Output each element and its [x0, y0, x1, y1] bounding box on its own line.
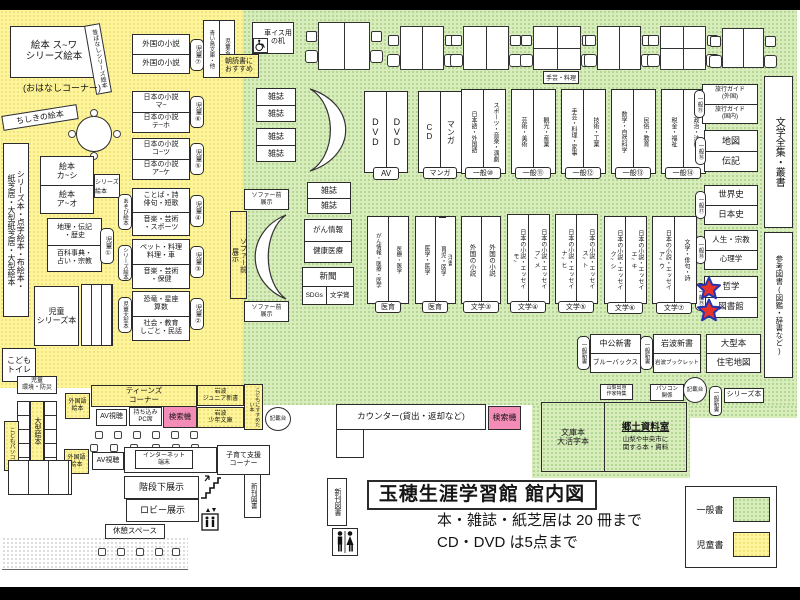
writing-desk-right: 記載台 [683, 377, 707, 403]
chair [133, 431, 141, 439]
search-terminal-counter: 検索機 [488, 406, 521, 430]
newspaper-rack: 新聞 SDGs 文学賞 [302, 267, 354, 305]
shelf-cell: 日本の小説・エッセイ エ~キ [625, 217, 646, 303]
tag-asobi-ehon: あそび絵本 [118, 194, 132, 230]
general-area-fill-ext2 [690, 405, 797, 418]
large-picture-books-strip: 大型絵本 [30, 401, 44, 461]
stack-lit-7: 日本の小説・エッセイ ア~ウ 文学・俳句・詩 [652, 216, 697, 304]
kids-shelf-strip [44, 401, 57, 461]
ohanashi-corner-label: (おはなしコーナー) [6, 82, 118, 94]
star-marker-icon [697, 298, 721, 322]
stack-med-2: 医学・医学 洋書 育児・医学 [415, 216, 456, 304]
new-books-strip-2: 新刊図書 [327, 478, 347, 526]
shelf-cell: 日本の小説・エッセイ ア~ウ [653, 217, 674, 303]
label-ippan-14: 一般⑭ [665, 167, 701, 179]
series-ehon-tag: シリーズ絵本 [94, 174, 120, 198]
shelf-cell: 日本の小説 コ~ツ [133, 139, 189, 159]
shelf-cell: 雑誌 [308, 183, 350, 198]
elevator-icon [201, 507, 219, 531]
shelf-cell: 外国の小説 [133, 54, 189, 74]
kids-shelf-unit [81, 284, 113, 346]
chair [68, 130, 76, 138]
shelf-cell: 日本の小説・エッセイ フ~メ [528, 215, 549, 303]
chair [190, 431, 198, 439]
yamanashi-authors-note: 山梨出身 作家特集 [600, 384, 633, 400]
star-marker-icon [697, 276, 721, 300]
shelf-cell: 民俗・教育 [633, 90, 655, 173]
shelf-cell: 観光・産業 [533, 90, 555, 173]
shelf-cell: 地図 [705, 131, 757, 151]
shelf-cell: 音楽・芸術 ・保健 [133, 264, 189, 289]
chair [155, 548, 163, 556]
chair [136, 548, 144, 556]
cancer-health-rack: がん情報 健康医療 [304, 219, 352, 263]
shelf-cell: 絵本 ア~オ [41, 185, 93, 214]
shelf-literature-anthology: 文学全集・叢書 [764, 76, 793, 228]
shelf-cell: 手芸・料理・家事 [562, 90, 583, 173]
shelf-cell: 雑誌 [257, 145, 295, 162]
series-books-box: シリーズ本 [724, 388, 764, 403]
av-viewing-2: AV視聴 [92, 452, 124, 470]
stack-lit-3: 外国の小説 外国の小説 [461, 216, 501, 304]
shelf-cell: 青い鳥文庫・他 [204, 21, 219, 77]
shelf-cell: 外国の小説 [462, 217, 481, 303]
shelf-cell: 旅行ガイド (国内) [703, 104, 757, 124]
chair [171, 431, 179, 439]
craft-cooking-note: 手芸・料理 [543, 71, 579, 84]
shelf-cell: 雑誌 [257, 105, 295, 122]
shelf-kids-jp-novels-ko: 日本の小説 コ~ツ 日本の小説 ア~ケ [132, 138, 190, 180]
asadoku-recommend-box: 朝読書に おすすめ [219, 54, 259, 78]
local-room-desc: 山梨や中央市に 関する本・資料 [623, 436, 669, 451]
sdgs-cell: SDGs [303, 287, 327, 305]
foreign-picture-books-1: 外国語 絵本 [65, 393, 90, 419]
shelf-cell: 音楽・芸術 ・スポーツ [133, 212, 189, 236]
shelf-kids-pets-cooking: ペット・料理 料理・車 音楽・芸術 ・保健 [132, 239, 190, 289]
reading-table [660, 26, 706, 70]
label-med-2: 医育 [422, 301, 448, 313]
map-title: 玉穂生涯学習館 館内図 [367, 480, 597, 510]
under-stairs-display: 階段下展示 [124, 476, 199, 499]
stack-med-1: がん情報・医療・医学 医療・医学 [367, 216, 409, 304]
chair [95, 431, 103, 439]
tag-ippan-15: 一般⑮ [694, 90, 705, 118]
local-room-cell: 郷土資料室 山梨や中央市に 関する本・資料 [604, 402, 686, 472]
rule-av: CD・DVD は5点まで [437, 534, 637, 552]
label-lit-5: 文学⑤ [558, 301, 594, 313]
label-manga: マンガ [423, 167, 457, 179]
stack-av: DVD DVD [364, 91, 408, 173]
shelf-kids-jp-novels-ma: 日本の小説 マ~ 日本の小説 テ~ホ [132, 91, 190, 133]
lobby-display: ロビー展示 [126, 499, 199, 522]
shelf-cell: マンガ [440, 92, 462, 172]
chair [110, 444, 118, 452]
local-room-title: 郷土資料室 [622, 423, 670, 434]
wheelchair-icon [253, 38, 268, 53]
shelf-cell: CD [419, 92, 440, 172]
search-terminal-teens: 検索機 [163, 406, 197, 428]
iwanami-shonen-bunko: 岩波 少年文庫 [197, 407, 244, 428]
shelf-cell: 日本の小説・エッセイ モ~ [508, 215, 528, 303]
restroom-icon [332, 528, 358, 556]
stack-ippan-11: 芸術・美術 観光・産業 [511, 89, 556, 174]
pc-related-box: パソコン 関係 [650, 384, 684, 401]
chair [117, 548, 125, 556]
shelf-maps-biography: 地図 伝記 [704, 130, 758, 172]
shelf-world-japan-history: 世界史 日本史 [704, 185, 758, 225]
label-lit-4: 文学④ [510, 301, 546, 313]
kids-recommend-strip: こどもにすすめたい本 [244, 384, 263, 430]
shelf-cell: 税金・福祉 [662, 90, 683, 173]
tag-series-ehon-side: シリーズ絵本 [118, 245, 132, 281]
shelf-cell: 社会・教育 しごと・民話 [133, 316, 189, 341]
shelf-cell: 外国の小説 [133, 35, 189, 54]
shelf-cell: ブルーバックス [591, 353, 640, 372]
shelf-cell: 日本語・外国語 [462, 90, 483, 173]
shelf-kids-foreign-novels: 外国の小説 外国の小説 [132, 34, 190, 74]
reading-table [533, 26, 581, 70]
chair [98, 548, 106, 556]
shelf-cell: 数学・自然科学 [612, 90, 633, 173]
reading-table [722, 28, 764, 68]
shelf-cell: 世界史 [705, 186, 757, 205]
shelf-cell: 人生・宗教 [705, 231, 757, 250]
reading-table [463, 26, 509, 70]
tag-ippan-16: 一般⑯ [695, 137, 706, 165]
kids-round-table [76, 116, 112, 152]
magazine-rack-1: 雑誌 雑誌 [256, 88, 296, 122]
reading-table [597, 26, 641, 70]
shelf-cell: 絵本 カ~シ [41, 157, 93, 185]
shelf-cell: 百科事典・ 占い・宗教 [48, 245, 101, 272]
label-med-1: 医育 [375, 301, 401, 313]
shelf-ehon-ka-shi-a-o: 絵本 カ~シ 絵本 ア~オ [40, 156, 94, 214]
sofa-front-display-bottom: ソファー前 展示 [244, 301, 289, 322]
shelf-cell: 洋書 育児・医学 [435, 217, 455, 303]
shelf-iwanami-shinsho: 岩波新書 岩波ブックレット [653, 334, 701, 373]
shelf-cell: 文学・俳句・詩 [674, 217, 696, 303]
service-counter: カウンター(貸出・返却など) [336, 404, 486, 430]
bunko-cell: 文庫本 大活字本 [542, 403, 604, 471]
shelf-kids-words-poetry: ことば・詩 俳句・短歌 音楽・芸術 ・スポーツ [132, 188, 190, 236]
shelf-cell: 日本の小説・エッセイ ナ~ヒ [556, 215, 576, 303]
shelf-cell: 技術・工業 [583, 90, 605, 173]
tag-jido-2: 児童② [190, 298, 204, 330]
stack-ippan-12: 手芸・料理・家事 技術・工業 [561, 89, 606, 174]
legend-general-label: 一般書 [692, 503, 728, 517]
shelf-cell: DVD [365, 92, 386, 172]
shelf-cell: 育児・医学 [439, 217, 446, 303]
shelf-cell: 雑誌 [257, 129, 295, 145]
bunko-local-room: 文庫本 大活字本 郷土資料室 山梨や中央市に 関する本・資料 [541, 402, 687, 472]
shelf-cell: 洋書 [446, 217, 453, 303]
tag-kids-large-books: 児童大型本 [118, 297, 132, 333]
shelf-cell: 心理学 [705, 250, 757, 270]
label-ippan-10: 一般⑩ [465, 167, 501, 179]
browsing-crescent [301, 86, 353, 174]
magazine-rack-3: 雑誌 雑誌 [307, 182, 351, 214]
shelf-cell: 日本の小説 ア~ケ [133, 159, 189, 180]
tag-jido-5: 児童⑤ [190, 143, 204, 175]
lobby-couch [8, 460, 72, 495]
label-ippan-12: 一般⑫ [565, 167, 601, 179]
chair [90, 444, 98, 452]
tag-jido-3: 児童③ [190, 246, 204, 278]
shelf-cell: 日本の小説・エッセイ ク~シ [605, 217, 625, 303]
sofa-front-display-top: ソファー前 展示 [244, 189, 289, 210]
shelf-cell: SDGs 文学賞 [303, 286, 353, 305]
label-lit-6: 文学⑥ [607, 302, 643, 314]
chair [114, 431, 122, 439]
shelf-cell: 雑誌 [308, 198, 350, 214]
writing-desk-left: 記載台 [265, 407, 291, 431]
stack-ippan-13: 数学・自然科学 民俗・教育 [611, 89, 656, 174]
shelf-kids-dinosaur-society: 恐竜・星座 算数 社会・教育 しごと・民話 [132, 291, 190, 341]
iwanami-junior-shinsho: 岩波 ジュニア新書 [197, 385, 244, 406]
stack-lit-6: 日本の小説・エッセイ ク~シ 日本の小説・エッセイ エ~キ [604, 216, 647, 304]
shelf-cell: ペット・料理 料理・車 [133, 240, 189, 264]
shelf-cell: 旅行ガイド (外国) [703, 85, 757, 104]
reading-table [400, 26, 444, 70]
sofa-front-display-side: ソファー前 展示 [230, 211, 247, 299]
new-books-strip-1: 新刊図書 [244, 474, 261, 518]
chair [172, 548, 180, 556]
stack-cd-manga: CD マンガ [418, 91, 462, 173]
teens-corner-header: ティーンズ コーナー [91, 385, 197, 407]
shelf-cell: 大型本 [707, 335, 760, 353]
shelf-cell: がん情報・医療・医学 [368, 217, 388, 303]
shelf-geography-reference: 地理・伝記 ・歴史 百科事典・ 占い・宗教 [47, 218, 102, 272]
literary-prize-cell: 文学賞 [327, 287, 354, 305]
shelf-cell: 伝記 [705, 151, 757, 172]
shelf-life-religion-psych: 人生・宗教 心理学 [704, 230, 758, 270]
magazine-rack-2: 雑誌 雑誌 [256, 128, 296, 162]
stack-lit-5: 日本の小説・エッセイ ナ~ヒ 日本の小説・エッセイ ス~ト [555, 214, 598, 304]
shelf-cell: 医学・医学 [416, 217, 435, 303]
rule-books: 本・雑誌・紙芝居は 20 冊まで [437, 512, 677, 530]
tag-ippan-17: 一般⑰ [695, 191, 706, 219]
sofa-crescent [250, 212, 294, 302]
shelf-large-books-map: 大型本 住宅地図 [706, 334, 761, 373]
shelf-cell: DVD [386, 92, 408, 172]
chair [152, 431, 160, 439]
shelf-cell: がん情報 [305, 220, 351, 241]
shelf-cell: 芸術・美術 [512, 90, 533, 173]
shelf-cell: ことば・詩 俳句・短歌 [133, 189, 189, 212]
tag-jido-1: 児童① [100, 228, 114, 264]
tag-jido-4: 児童④ [190, 195, 204, 227]
bottom-black-bar [0, 587, 800, 600]
childcare-support-corner: 子育て支援 コーナー [217, 445, 270, 475]
shelf-cell: 日本の小説・エッセイ ス~ト [576, 215, 597, 303]
label-ippan-11: 一般⑪ [515, 167, 551, 179]
shelf-reference-books: 参考図書(図鑑・辞書など) [764, 232, 793, 378]
shelf-cell: 日本史 [705, 205, 757, 225]
reading-table [318, 22, 370, 70]
tag-ippan-shinsho-2: 一般新書 [640, 336, 653, 370]
shelf-cell: 中公新書 [591, 335, 640, 353]
shelf-travel-guides: 旅行ガイド (外国) 旅行ガイド (国内) [702, 84, 758, 124]
label-lit-3: 文学③ [463, 301, 499, 313]
shelf-cell: 医療・医学 [388, 217, 409, 303]
shelf-cell: 外国の小説 [481, 217, 501, 303]
legend-children-swatch [733, 532, 770, 557]
shelf-cell: 岩波ブックレット [654, 353, 700, 372]
label-ippan-13: 一般⑬ [615, 167, 651, 179]
tag-ippan-shinsho-3: 一般新書 [709, 386, 722, 416]
shelf-cell: 新聞 [303, 268, 353, 286]
chair [113, 130, 121, 138]
internet-terminal-label: インターネット 端末 [135, 450, 193, 469]
stack-ippan-10: 日本語・外国語 スポーツ・音楽・演劇 [461, 89, 506, 174]
shelf-series-braille-kamishibai: シリーズ本・点字絵本・布絵本・ 紙芝居・大型紙芝居・大型絵本 [3, 143, 29, 317]
stairs-icon [200, 473, 222, 499]
tag-jido-7: 児童⑦ [190, 39, 204, 71]
shelf-cell: スポーツ・音楽・演劇 [483, 90, 505, 173]
label-av: AV [373, 167, 399, 180]
tag-jido-6: 児童⑥ [190, 96, 204, 128]
av-viewing-1: AV視聴 [96, 409, 127, 426]
stack-lit-4: 日本の小説・エッセイ モ~ 日本の小説・エッセイ フ~メ [507, 214, 550, 304]
service-counter-leg [336, 429, 364, 458]
top-black-bar [0, 0, 800, 10]
shelf-cell: 健康医療 [305, 241, 351, 263]
shelf-cell: 日本の小説 マ~ [133, 92, 189, 112]
kids-env-disaster: 児童 環境・防災 [17, 376, 57, 394]
shelf-kids-series: 児童 シリーズ本 [34, 286, 79, 346]
label-lit-7: 文学⑦ [656, 302, 692, 314]
shelf-cell: 恐竜・星座 算数 [133, 292, 189, 316]
shelf-cell: 雑誌 [257, 89, 295, 105]
byod-pc-seat: 持ち込み PC席 [129, 407, 162, 426]
legend-children-label: 児童書 [692, 538, 728, 552]
shelf-cell: 岩波新書 [654, 335, 700, 353]
shelf-cell: 地理・伝記 ・歴史 [48, 219, 101, 245]
shelf-cell: 住宅地図 [707, 353, 760, 372]
shelf-cell: 日本の小説 テ~ホ [133, 112, 189, 133]
shelf-chuko-bluebacks: 中公新書 ブルーバックス [590, 334, 641, 373]
chair [90, 109, 98, 117]
legend-general-swatch [733, 497, 770, 522]
tag-ippan-shinsho-1: 一般新書 [577, 336, 590, 370]
